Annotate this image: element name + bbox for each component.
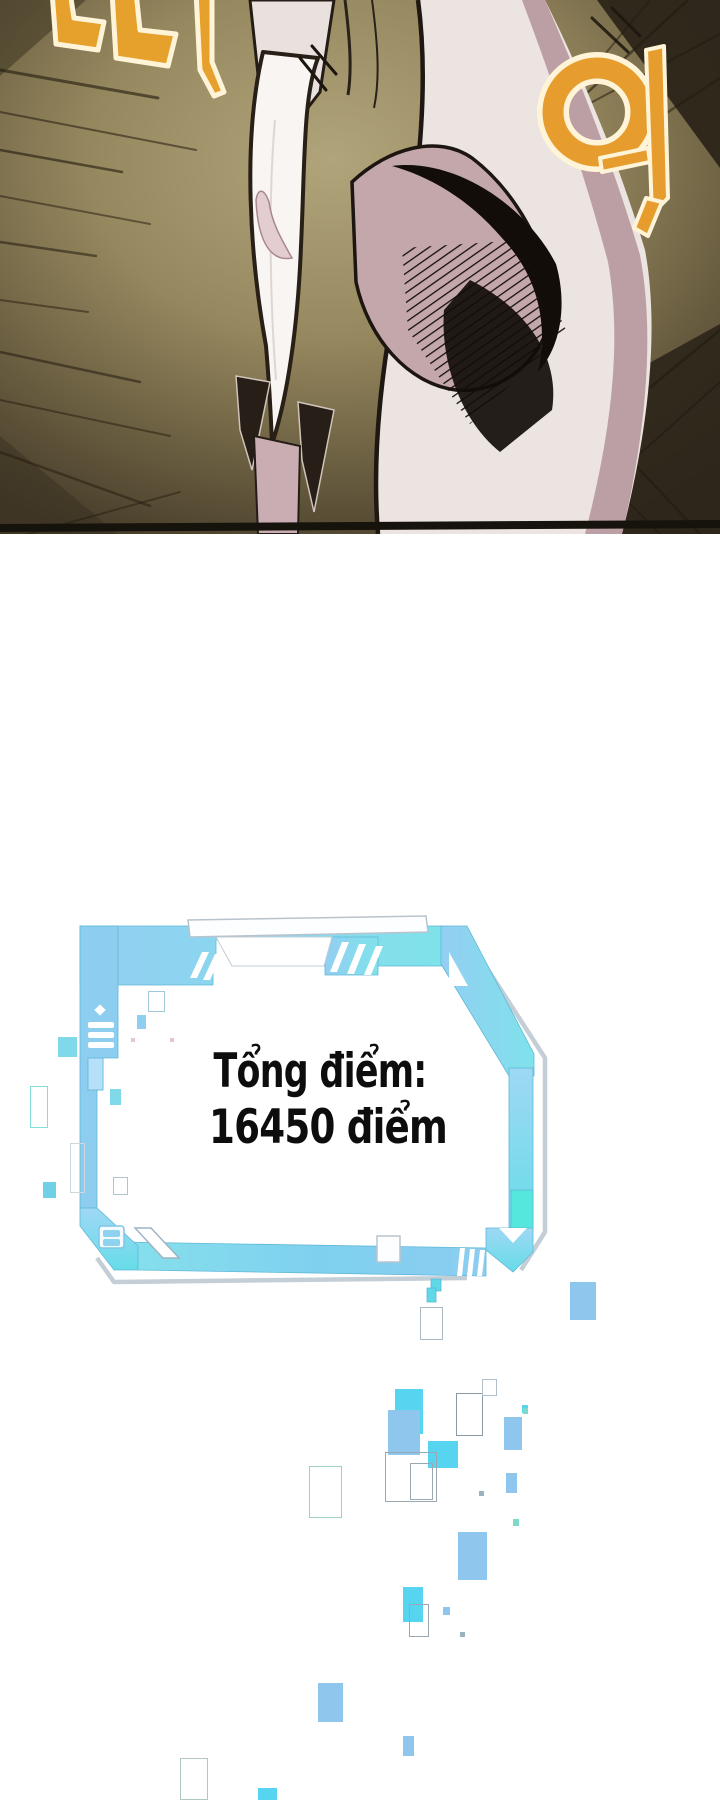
pixel-particle — [170, 1038, 174, 1042]
pixel-particle — [513, 1519, 519, 1526]
pixel-particle — [113, 1177, 128, 1195]
pixel-particle — [420, 1307, 443, 1340]
pixel-particle — [504, 1417, 522, 1450]
pixel-particle — [506, 1473, 517, 1493]
status-total-label: Tổng điểm: — [214, 1044, 427, 1099]
pixel-particle — [482, 1379, 497, 1396]
pixel-particle — [570, 1282, 596, 1320]
pixel-particle — [148, 991, 165, 1012]
comic-panel — [0, 0, 720, 534]
pixel-particle — [523, 1408, 528, 1414]
pixel-particle — [58, 1037, 77, 1057]
finger-stub — [254, 436, 300, 534]
pixel-particle — [309, 1466, 342, 1518]
comic-panel-art — [0, 0, 720, 534]
pixel-particle — [388, 1410, 420, 1455]
pixel-particle — [70, 1143, 85, 1193]
pixel-particle — [479, 1491, 484, 1496]
pixel-particle — [460, 1632, 465, 1637]
pixel-particle — [180, 1758, 208, 1800]
pixel-particle — [409, 1604, 429, 1637]
pixel-particle — [43, 1182, 56, 1198]
pixel-particle — [131, 1038, 135, 1042]
pixel-particle — [318, 1683, 343, 1722]
pixel-particle — [110, 1089, 121, 1105]
pixel-particle — [456, 1393, 483, 1436]
pixel-particle — [258, 1788, 277, 1800]
status-total-value: 16450 điểm — [209, 1100, 447, 1155]
comic-page: Tổng điểm: 16450 điểm — [0, 0, 720, 1800]
pixel-particle — [458, 1532, 487, 1580]
pixel-particle — [137, 1015, 146, 1029]
pixel-particle — [30, 1086, 48, 1128]
pixel-particle — [410, 1463, 433, 1500]
pixel-particle — [403, 1736, 414, 1756]
pixel-particle — [443, 1607, 450, 1615]
status-window: Tổng điểm: 16450 điểm — [0, 880, 720, 1440]
status-window-frame: Tổng điểm: 16450 điểm — [0, 880, 720, 1440]
